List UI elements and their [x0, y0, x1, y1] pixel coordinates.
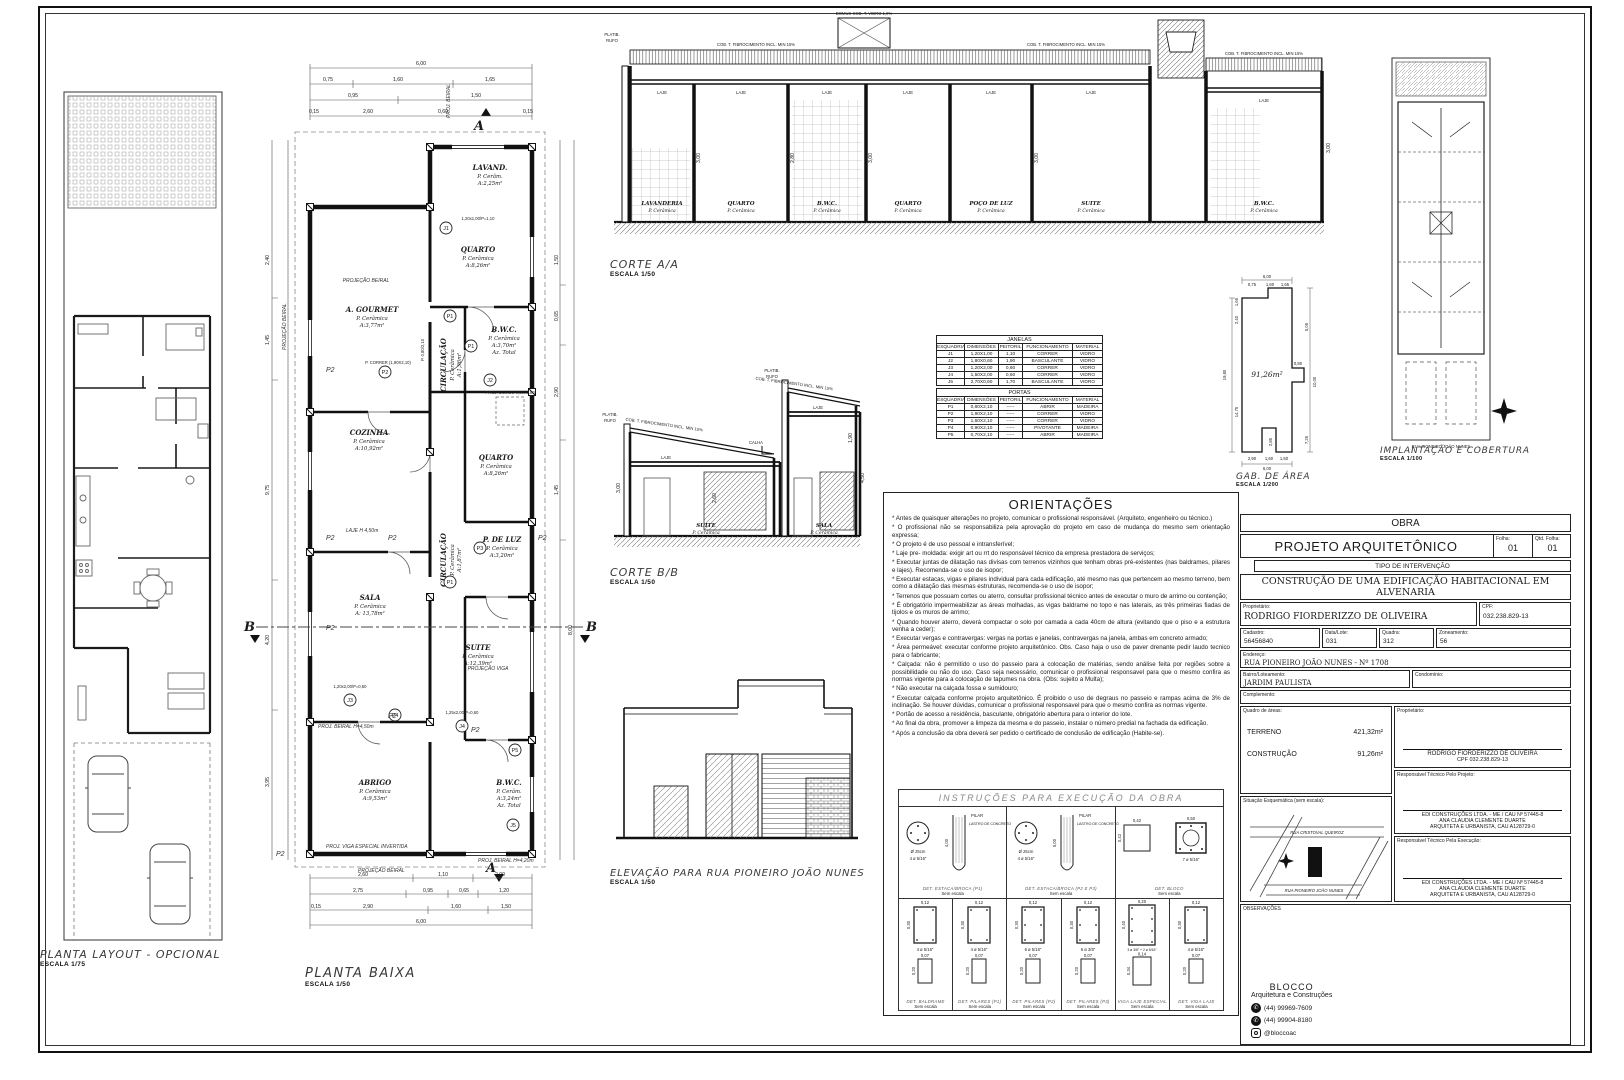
svg-text:P2: P2	[326, 367, 335, 374]
pilar-1-figure: 0,12 0,30 4 ø 5/16" 0,07 0,20	[953, 899, 1006, 995]
pilar-1-scale: Sem escala	[953, 1004, 1006, 1009]
cob-label-left: COB. T. FIBROCIMENTO INCL. MIN 15%	[625, 417, 703, 433]
gab-area-title-block: GAB. DE ÁREA ESCALA 1/200	[1236, 472, 1310, 488]
planta-baixa-scale: ESCALA 1/50	[305, 981, 416, 988]
section-letter-b-right: B	[585, 620, 597, 635]
svg-text:P. Cerâmica: P. Cerâmica	[355, 315, 388, 322]
svg-text:1,65: 1,65	[1281, 282, 1290, 287]
svg-text:LAVAND.: LAVAND.	[472, 163, 508, 172]
svg-text:P. Cerâm.: P. Cerâm.	[476, 173, 503, 180]
cars	[85, 756, 193, 924]
pilar-detail-0: 0,12 0,30 4 ø 5/16" 0,07 0,20 DET. BALDR…	[899, 899, 953, 1011]
svg-text:0,75: 0,75	[1248, 282, 1257, 287]
quadra-label: Quadra:	[1382, 630, 1400, 636]
bairro-cell: Bairro/Loteamento: JARDIM PAULISTA	[1240, 670, 1410, 688]
pilar-2-scale: Sem escala	[1007, 1004, 1060, 1009]
svg-text:LAVANDERIA: LAVANDERIA	[640, 201, 682, 207]
ground	[614, 536, 860, 547]
room-bwc-2: B.W.C.P. Cerâm.A:3,24m²Az. Total	[495, 778, 522, 809]
lote-value: 031	[1326, 638, 1337, 645]
svg-text:0,65: 0,65	[459, 888, 469, 894]
garden-hatch	[1396, 62, 1486, 96]
situacao-cell: Situação Esquemática (sem escala): RUA C…	[1240, 796, 1392, 902]
estaca-2-figure: Ø 25cm 4 ø 5/16" PILAR LASTRO DE CONCRET…	[1009, 809, 1113, 875]
garden-hatch	[68, 96, 216, 208]
svg-text:P. Cerâmica: P. Cerâmica	[1249, 207, 1278, 214]
domus-label: DOMUS COB. T. VIDRO 1,0%	[836, 11, 893, 16]
proprietario-sig-cell: Proprietário: RODRIGO FIORDERIZZO DE OLI…	[1394, 706, 1571, 768]
section-marker-a: A A	[472, 108, 504, 882]
svg-text:0,15: 0,15	[311, 904, 321, 910]
corte-aa-scale: ESCALA 1/50	[610, 271, 679, 278]
bloco-detail: 0,42 0,42 0,50 7 ø 5/16" DET. BLOCO Sem …	[1116, 807, 1223, 898]
svg-text:3,00: 3,00	[1326, 143, 1332, 153]
svg-text:3,00: 3,00	[1034, 153, 1040, 163]
svg-text:1,60: 1,60	[1266, 282, 1275, 287]
svg-text:0,80: 0,80	[1294, 361, 1303, 366]
tag-p1b: P1	[465, 340, 477, 352]
svg-text:LASTRO DE CONCRETO: LASTRO DE CONCRETO	[1077, 822, 1119, 826]
svg-text:6,00: 6,00	[416, 919, 426, 925]
resp-exec-line3: ARQUITETA E URBANISTA, CAU A128729-0	[1403, 892, 1562, 898]
svg-text:P. Cerâmica: P. Cerâmica	[976, 207, 1005, 214]
svg-text:7,25: 7,25	[1304, 435, 1309, 444]
svg-text:PLATIB.: PLATIB.	[604, 32, 619, 37]
opening-spec-labels: 1,20x1,00/P=1,10 P. 0,80/2,10 P. CORRER …	[334, 216, 496, 715]
whatsapp-icon: ✆	[1251, 1016, 1261, 1026]
instagram-icon	[1251, 1028, 1261, 1038]
svg-text:Ø 25cm: Ø 25cm	[1019, 849, 1034, 854]
table-row: J31,20X2,000,60CORRERVIDRO	[937, 365, 1103, 372]
observacoes-cell: OBSERVAÇÕES BLOCCO Arquitetura e Constru…	[1240, 904, 1571, 1045]
window-hatch-sala	[820, 472, 854, 530]
svg-text:B.W.C.: B.W.C.	[1253, 201, 1274, 207]
planta-layout-drawing	[58, 88, 238, 953]
table-row: P50,70X2,10-----ABRIRMADEIRA	[937, 432, 1103, 439]
svg-text:6,00: 6,00	[416, 61, 426, 67]
ann-viga-invertida: PROJ. VIGA ESPECIAL INVERTIDA	[326, 844, 408, 850]
estaca-detail-1: Ø 25cm 4 ø 5/16" PILAR LASTRO DE CONCRET…	[899, 807, 1007, 898]
svg-text:P. Cerâmica: P. Cerâmica	[691, 529, 720, 536]
svg-text:4 ø 5/16": 4 ø 5/16"	[971, 947, 988, 952]
svg-text:PILAR: PILAR	[1079, 813, 1091, 818]
svg-text:0,20: 0,20	[911, 966, 916, 975]
svg-text:LAJE: LAJE	[657, 90, 667, 95]
portas-table: PORTAS ESQUADRIA DIMENSÕES PEITORIL FUNC…	[936, 388, 1103, 439]
svg-text:0,30: 0,30	[906, 920, 911, 929]
cadastro-cell: Cadastro: 56456840	[1240, 628, 1320, 648]
svg-text:P. Cerâmica: P. Cerâmica	[485, 545, 518, 552]
tag-j2: J2	[484, 374, 496, 386]
svg-text:0,15: 0,15	[309, 109, 319, 115]
svg-text:3,00: 3,00	[616, 483, 622, 493]
svg-text:P. Cerâmica: P. Cerâmica	[353, 603, 386, 610]
planta-baixa-title: PLANTA BAIXA	[305, 966, 416, 981]
pilar-3-figure: 0,12 0,30 6 ø 3/8" 0,07 0,20	[1062, 899, 1115, 995]
svg-text:P. 0,80/2,10: P. 0,80/2,10	[420, 338, 425, 361]
svg-text:LAJE: LAJE	[1259, 98, 1269, 103]
complemento-label: Complemento:	[1243, 692, 1276, 698]
ann-projecao-viga: PROJEÇÃO VIGA	[468, 665, 510, 672]
room-quarto-1: QUARTOP. CerâmicaA:8,26m²	[461, 245, 496, 269]
svg-text:14,75: 14,75	[1234, 406, 1239, 417]
svg-text:10,00: 10,00	[1312, 376, 1317, 387]
svg-text:0,75: 0,75	[323, 77, 333, 83]
implantacao-drawing: RUA PIONEIRO JOÃO NUNES	[1372, 52, 1517, 450]
svg-text:1,50: 1,50	[554, 255, 560, 265]
room-p-de-luz: P. DE LUZP. CerâmicaA:3,20m²	[482, 535, 522, 559]
svg-text:6,00: 6,00	[1263, 466, 1272, 471]
obra-header: OBRA	[1240, 514, 1571, 532]
svg-text:1,60: 1,60	[393, 77, 403, 83]
calha-label: CALHA	[749, 440, 763, 445]
bloco-figure: 0,42 0,42 0,50 7 ø 5/16"	[1118, 809, 1222, 875]
pilar-5-scale: Sem escala	[1170, 1004, 1223, 1009]
estaca-detail-2: Ø 25cm 4 ø 5/16" PILAR LASTRO DE CONCRET…	[1007, 807, 1115, 898]
orientacao-item: * Ao final da obra, promover a limpeza d…	[892, 720, 1230, 728]
portas-header: ESQUADRIA	[937, 397, 965, 404]
ann-projecao-beiral-left: PROJEÇÃO BEIRAL	[281, 303, 288, 350]
svg-text:4,00: 4,00	[944, 838, 949, 847]
ann-projecao-beiral-1: PROJEÇÃO BEIRAL	[343, 277, 390, 284]
svg-text:0,12: 0,12	[1029, 900, 1038, 905]
svg-text:0,12: 0,12	[921, 900, 930, 905]
tag-p2: P2	[379, 366, 391, 378]
observacoes-label: OBSERVAÇÕES	[1243, 906, 1281, 912]
right-bwc-tile-hatch	[1210, 108, 1260, 220]
svg-text:COZINHA: COZINHA	[350, 428, 389, 437]
pilar-detail-3: 0,12 0,30 6 ø 3/8" 0,07 0,20 DET. PILARE…	[1062, 899, 1116, 1011]
svg-text:LASTRO DE CONCRETO: LASTRO DE CONCRETO	[969, 822, 1011, 826]
portas-header: PEITORIL	[999, 397, 1023, 404]
svg-text:2,60: 2,60	[712, 493, 718, 503]
svg-text:J2: J2	[487, 378, 493, 384]
janelas-header: PEITORIL	[999, 344, 1023, 351]
gab-area-scale: ESCALA 1/200	[1236, 482, 1310, 488]
room-labels: LAVANDERIAP. Cerâmica QUARTOP. Cerâmica …	[640, 201, 1278, 214]
planta-baixa-title-block: PLANTA BAIXA ESCALA 1/50	[305, 966, 416, 988]
instrucoes-row-pillars: 0,12 0,30 4 ø 5/16" 0,07 0,20 DET. BALDR…	[899, 899, 1223, 1011]
svg-text:8,00: 8,00	[568, 625, 574, 635]
janelas-header: MATERIAL	[1073, 344, 1103, 351]
svg-text:2,60: 2,60	[363, 109, 373, 115]
planta-baixa-drawing: PROJ. DOMUS 0,80X0,80 B B A A LAVAND.P. …	[238, 20, 602, 935]
janelas-header: ESQUADRIA	[937, 344, 965, 351]
orientacoes-title: ORIENTAÇÕES	[884, 497, 1238, 512]
north-star-icon	[1491, 398, 1517, 424]
svg-text:SUITE: SUITE	[1081, 201, 1101, 207]
svg-text:P. Cerâmica: P. Cerâmica	[449, 349, 456, 382]
descricao-obra: CONSTRUÇÃO DE UMA EDIFICAÇÃO HABITACIONA…	[1240, 574, 1571, 600]
svg-text:4 ø 5/16": 4 ø 5/16"	[1187, 947, 1204, 952]
contact-phone-2: ✆ (44) 99904-8180	[1251, 1016, 1332, 1026]
svg-text:0,12: 0,12	[975, 900, 984, 905]
svg-text:P. Cerâmica: P. Cerâmica	[461, 255, 494, 262]
corte-bb-title-block: CORTE B/B ESCALA 1/50	[610, 566, 679, 586]
svg-text:1,20: 1,20	[499, 888, 509, 894]
svg-text:J3: J3	[347, 698, 353, 704]
svg-text:0,30: 0,30	[960, 920, 965, 929]
svg-text:A:1,96m²: A:1,96m²	[457, 353, 463, 379]
svg-text:A: 13,78m²: A: 13,78m²	[354, 611, 385, 617]
pilar-3-scale: Sem escala	[1062, 1004, 1115, 1009]
svg-text:0,12: 0,12	[1192, 900, 1201, 905]
svg-text:P. Cerâmica: P. Cerâmica	[352, 438, 385, 445]
walls	[310, 147, 532, 854]
orientacao-item: * Não executar na calçada fossa e sumido…	[892, 685, 1230, 693]
resp-execucao-label: Responsável Técnico Pela Execução:	[1397, 838, 1481, 844]
tag-j4: J4	[456, 720, 468, 732]
domus-label: PROJ. DOMUS 0,80X0,80	[485, 390, 535, 395]
svg-text:1,20x2,00/P=0,60: 1,20x2,00/P=0,60	[334, 684, 368, 689]
domus-projection: PROJ. DOMUS 0,80X0,80	[485, 390, 535, 425]
svg-text:5,00: 5,00	[1052, 838, 1057, 847]
orientacoes-panel: ORIENTAÇÕES * Antes de quaisquer alteraç…	[883, 492, 1239, 1016]
svg-text:1,50: 1,50	[471, 93, 481, 99]
qtd-folha-value: 01	[1533, 541, 1572, 555]
svg-text:A:3,20m²: A:3,20m²	[489, 553, 515, 559]
implantacao-title: IMPLANTAÇÃO E COBERTURA	[1380, 446, 1530, 456]
implantacao-title-block: IMPLANTAÇÃO E COBERTURA ESCALA 1/100	[1380, 446, 1530, 462]
janelas-table: JANELAS ESQUADRIA DIMENSÕES PEITORIL FUN…	[936, 335, 1103, 386]
svg-text:3,00: 3,00	[868, 153, 874, 163]
svg-text:RUFO: RUFO	[766, 374, 779, 379]
endereco-cell: Endereço: RUA PIONEIRO JOÃO NUNES - Nº 1…	[1240, 650, 1571, 668]
svg-text:P2: P2	[326, 625, 335, 632]
svg-text:1,10: 1,10	[438, 872, 448, 878]
pilar-4-scale: Sem escala	[1116, 1004, 1169, 1009]
svg-text:P. Cerâmica: P. Cerâmica	[809, 529, 838, 536]
svg-text:P2: P2	[276, 851, 285, 858]
resp-projeto-cell: Responsável Técnico Pelo Projeto: EDI CO…	[1394, 770, 1571, 834]
svg-text:0,15: 0,15	[523, 109, 533, 115]
layout-walls	[74, 316, 210, 733]
svg-text:B.W.C.: B.W.C.	[495, 778, 521, 787]
svg-text:0,42: 0,42	[1117, 833, 1122, 842]
instrucoes-panel: INSTRUÇÕES PARA EXECUÇÃO DA OBRA Ø 25cm …	[898, 789, 1224, 1011]
orientacao-item: * Terrenos que possuam cortes ou aterro,…	[892, 593, 1230, 601]
section-line-b: B B	[243, 620, 597, 643]
svg-text:RUFO: RUFO	[606, 38, 619, 43]
brand-subtitle: Arquitetura e Construções	[1251, 992, 1332, 999]
pilar-2-figure: 0,12 0,30 6 ø 5/16" 0,07 0,20	[1007, 899, 1060, 995]
tag-j1: J1	[440, 222, 452, 234]
svg-text:0,07: 0,07	[1192, 953, 1201, 958]
svg-text:QUARTO: QUARTO	[479, 453, 514, 462]
condominio-label: Condomínio:	[1415, 672, 1443, 678]
tipo-intervencao: TIPO DE INTERVENÇÃO	[1254, 560, 1571, 572]
pilar-0-scale: Sem escala	[899, 1004, 952, 1009]
svg-text:RUFO: RUFO	[604, 418, 617, 423]
planta-layout-title: PLANTA LAYOUT - OPCIONAL	[40, 948, 221, 961]
portas-caption: PORTAS	[937, 389, 1103, 397]
svg-text:P. DE LUZ: P. DE LUZ	[482, 535, 522, 544]
svg-text:0,30: 0,30	[1177, 920, 1182, 929]
tag-p1: P1	[444, 310, 456, 322]
svg-text:1,60: 1,60	[451, 904, 461, 910]
orientacao-item: * Executar juntas de dilatação nas divis…	[892, 559, 1230, 574]
svg-text:Az. Total: Az. Total	[496, 803, 521, 809]
svg-text:P1: P1	[468, 344, 475, 350]
svg-text:0,65: 0,65	[554, 311, 560, 321]
corte-bb-drawing: COB. T. FIBROCIMENTO INCL. MIN 15% COB. …	[606, 328, 868, 576]
orientacao-item: * Executar calçada conforme projeto arqu…	[892, 695, 1230, 710]
pilar-detail-1: 0,12 0,30 4 ø 5/16" 0,07 0,20 DET. PILAR…	[953, 899, 1007, 1011]
svg-text:P2: P2	[326, 535, 335, 542]
orientacoes-list: * Antes de quaisquer alterações no proje…	[884, 515, 1238, 737]
instagram-handle: @bloccoac	[1264, 1030, 1296, 1037]
pilar-4-figure: 0,20 0,40 3 ø 3/8" + 2 ø 5/16" 0,14 0,34	[1116, 899, 1169, 995]
quadro-areas-label: Quadro de áreas:	[1243, 708, 1282, 714]
prop-sig-cpf: CPF 032.238.829-13	[1403, 757, 1562, 763]
svg-text:2,60: 2,60	[358, 872, 368, 878]
svg-text:0,20: 0,20	[1019, 966, 1024, 975]
lote-cell: Data/Lote: 031	[1322, 628, 1377, 648]
elevacao-title-block: ELEVAÇÃO PARA RUA PIONEIRO JOÃO NUNES ES…	[610, 868, 865, 886]
layout-furniture	[76, 324, 208, 720]
endereco-value: RUA PIONEIRO JOÃO NUNES - Nº 1708	[1244, 659, 1389, 667]
svg-text:2,90: 2,90	[1248, 456, 1257, 461]
prop-sig-label: Proprietário:	[1397, 708, 1424, 714]
room-gourmet: A. GOURMETP. CerâmicaA:3,77m²	[345, 305, 399, 329]
table-row: J41,50X2,000,60CORRERVIDRO	[937, 372, 1103, 379]
svg-text:0,12: 0,12	[1083, 900, 1092, 905]
svg-text:1,65: 1,65	[485, 77, 495, 83]
svg-text:A:8,26m²: A:8,26m²	[465, 263, 491, 269]
condominio-cell: Condomínio:	[1412, 670, 1571, 688]
estaca-1-figure: Ø 25cm 4 ø 5/16" PILAR LASTRO DE CONCRET…	[901, 809, 1005, 875]
svg-text:B.W.C.: B.W.C.	[490, 325, 516, 334]
svg-text:P. Cerâmica: P. Cerâmica	[487, 335, 520, 342]
corte-aa-title-block: CORTE A/A ESCALA 1/50	[610, 258, 679, 278]
svg-text:0,14: 0,14	[1138, 952, 1147, 957]
elevacao-drawing	[606, 636, 868, 872]
brand-name: BLOCCO	[1251, 982, 1332, 992]
terreno-value: 421,32m²	[1353, 729, 1383, 736]
portas-header: MATERIAL	[1073, 397, 1103, 404]
svg-text:2,40: 2,40	[265, 255, 271, 265]
svg-text:QUARTO: QUARTO	[894, 201, 921, 207]
quadra-cell: Quadra: 312	[1379, 628, 1434, 648]
proprietario-value: RODRIGO FIORDERIZZO DE OLIVEIRA	[1244, 612, 1427, 622]
section-letter-a-top: A	[472, 119, 484, 134]
room-lavand: LAVAND.P. Cerâm.A:2,25m²	[472, 163, 508, 187]
portas-header: DIMENSÕES	[965, 397, 999, 404]
svg-text:SALA: SALA	[360, 593, 381, 602]
svg-text:A:3,77m²: A:3,77m²	[359, 323, 385, 329]
svg-text:P. Cerâmica: P. Cerâmica	[726, 207, 755, 214]
svg-text:PLATIB.: PLATIB.	[602, 412, 617, 417]
janelas-header: FUNCIONAMENTO	[1023, 344, 1073, 351]
cpf-value: 032.238.829-13	[1483, 613, 1529, 620]
corte-bb-title: CORTE B/B	[610, 566, 679, 579]
planta-layout-title-block: PLANTA LAYOUT - OPCIONAL ESCALA 1/75	[40, 948, 221, 968]
svg-text:P2: P2	[538, 535, 547, 542]
svg-text:A:8,26m²: A:8,26m²	[483, 471, 509, 477]
cpf-cell: CPF: 032.238.829-13	[1479, 602, 1571, 626]
svg-text:P. Cerâmica: P. Cerâmica	[893, 207, 922, 214]
zoneamento-label: Zoneamento:	[1439, 630, 1468, 636]
estaca-1-scale: Sem escala	[899, 891, 1006, 896]
svg-text:P. Cerâmica: P. Cerâmica	[358, 788, 391, 795]
room-sala: SALAP. CerâmicaA: 13,78m²	[353, 593, 386, 617]
quadra-value: 312	[1383, 638, 1394, 645]
phone-1: (44) 99969-7609	[1264, 1005, 1312, 1012]
svg-text:P. CORRER (1,90X2,10): P. CORRER (1,90X2,10)	[365, 360, 411, 365]
svg-text:COB. T. FIBROCIMENTO INCL. MIN: COB. T. FIBROCIMENTO INCL. MIN 15%	[717, 42, 795, 47]
gab-area-title: GAB. DE ÁREA	[1236, 472, 1310, 482]
whatsapp-icon: ✆	[1251, 1003, 1261, 1013]
domus-skylight: DOMUS COB. T. VIDRO 1,0%	[836, 11, 893, 48]
orientacao-item: * O projeto é de uso pessoal e intransfe…	[892, 541, 1230, 549]
svg-text:2,90: 2,90	[554, 387, 560, 397]
orientacao-item: * Quando houver aterro, deverá compactar…	[892, 619, 1230, 634]
table-row: P31,60X2,10-----CORRERVIDRO	[937, 418, 1103, 425]
svg-text:SUITE: SUITE	[466, 643, 492, 652]
svg-text:6 ø 5/16": 6 ø 5/16"	[1025, 947, 1042, 952]
instrucoes-title: INSTRUÇÕES PARA EXECUÇÃO DA OBRA	[899, 790, 1223, 807]
svg-text:0,30: 0,30	[1014, 920, 1019, 929]
svg-text:6 ø 3/8": 6 ø 3/8"	[1080, 947, 1095, 952]
svg-text:0,20: 0,20	[1138, 899, 1147, 904]
room-cozinha: COZINHAP. CerâmicaA:10,92m²	[350, 428, 389, 452]
svg-text:P. Cerâmica: P. Cerâmica	[461, 653, 494, 660]
svg-text:4 ø 5/16": 4 ø 5/16"	[1018, 856, 1035, 861]
ground	[614, 222, 1324, 234]
svg-text:4 ø 5/16": 4 ø 5/16"	[910, 856, 927, 861]
svg-text:P5: P5	[512, 748, 519, 754]
svg-text:QUARTO: QUARTO	[727, 201, 754, 207]
roof	[630, 50, 1322, 92]
projeto-row: PROJETO ARQUITETÔNICO Folha: 01 Qtd. Fol…	[1240, 534, 1571, 558]
laje-label-right: LAJE	[813, 405, 823, 410]
zoneamento-cell: Zoneamento: 56	[1436, 628, 1571, 648]
tag-j5: J5	[507, 819, 519, 831]
svg-text:COB. T. FIBROCIMENTO INCL. MIN: COB. T. FIBROCIMENTO INCL. MIN 15%	[1225, 51, 1303, 56]
svg-text:4,50: 4,50	[860, 473, 866, 483]
svg-text:0,20: 0,20	[965, 966, 970, 975]
svg-text:0,20: 0,20	[1074, 966, 1079, 975]
ann-proj-beiral-420: PROJ. BEIRAL H=4,20m	[478, 858, 534, 864]
svg-text:4,20: 4,20	[265, 635, 271, 645]
svg-text:1,50: 1,50	[501, 904, 511, 910]
room-bwc-1: B.W.C.P. CerâmicaA:3,70m²Az. Total	[487, 325, 520, 356]
orientacao-item: * Executar estacas, vigas e pilares indi…	[892, 576, 1230, 591]
svg-text:A:9,53m²: A:9,53m²	[362, 796, 388, 802]
svg-text:0,40: 0,40	[1121, 920, 1126, 929]
svg-text:1,65: 1,65	[1234, 297, 1239, 306]
elevacao-scale: ESCALA 1/50	[610, 879, 865, 886]
svg-text:0,95: 0,95	[423, 888, 433, 894]
svg-text:P2: P2	[388, 535, 397, 542]
room-quarto-2: QUARTOP. CerâmicaA:8,26m²	[479, 453, 514, 477]
svg-text:3,95: 3,95	[265, 777, 271, 787]
svg-text:1,60: 1,60	[1265, 456, 1274, 461]
svg-text:2,75: 2,75	[353, 888, 363, 894]
ann-proj-beiral-450: PROJ. BEIRAL H=4,50m	[318, 724, 374, 730]
laje-labels: LAJE LAJE LAJE LAJE LAJE LAJE LAJE	[657, 90, 1269, 103]
svg-text:B.W.C.: B.W.C.	[816, 201, 837, 207]
pilar-detail-5: 0,12 0,30 4 ø 5/16" 0,07 0,20 DET. VIGA …	[1170, 899, 1223, 1011]
svg-text:A:1,87m²: A:1,87m²	[457, 548, 463, 574]
svg-text:6,00: 6,00	[1263, 274, 1272, 279]
phone-2: (44) 99904-8180	[1264, 1017, 1312, 1024]
svg-text:5,05: 5,05	[1304, 322, 1309, 331]
svg-text:P. Cerâmica: P. Cerâmica	[479, 463, 512, 470]
svg-text:0,07: 0,07	[1029, 953, 1038, 958]
corte-aa-drawing: DOMUS COB. T. VIDRO 1,0% COB. T. FIBROCI…	[606, 8, 1341, 270]
svg-text:0,50: 0,50	[1187, 816, 1196, 821]
